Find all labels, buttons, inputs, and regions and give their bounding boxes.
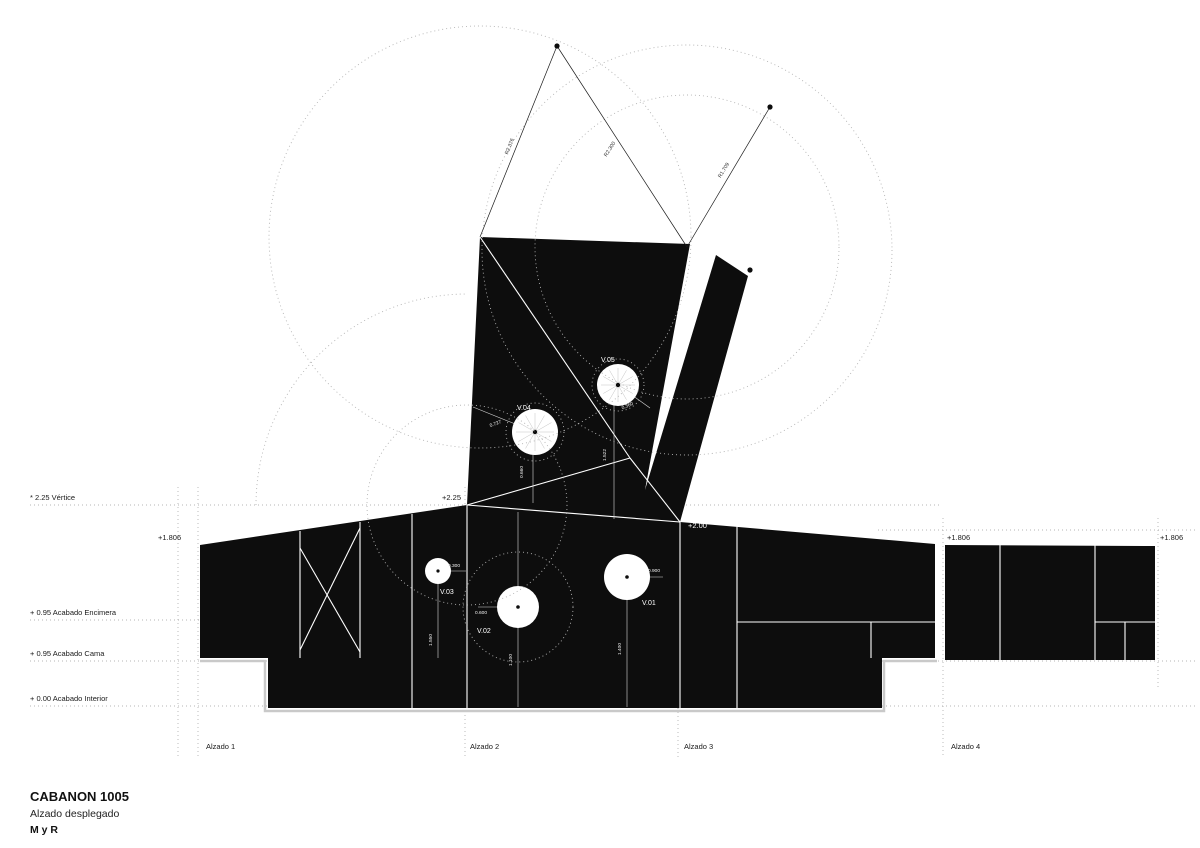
construction-arc-6 [256, 294, 467, 505]
dim-v01-height: 1.400 [617, 643, 623, 655]
level-label-1806-left: +1.806 [158, 533, 181, 542]
window-label-v05: V.05 [601, 357, 615, 364]
alzado-label-2: Alzado 2 [470, 742, 499, 751]
level-label-interior: + 0.00 Acabado Interior [30, 694, 108, 703]
window-label-v03: V.03 [440, 589, 454, 596]
radius-label-2: R2.300 [603, 141, 617, 158]
mark-apex: +2.25 [442, 493, 461, 502]
radius-dot-2 [767, 104, 772, 109]
radius-dot-1 [554, 43, 559, 48]
mark-ridge: +2.00 [688, 521, 707, 530]
window-label-v01: V.01 [642, 600, 656, 607]
radius-line-3 [687, 107, 770, 247]
author: M y R [30, 824, 58, 836]
solid-shapes [200, 237, 1155, 708]
dim-v03-diameter: 0.300 [448, 563, 460, 569]
level-label-vertice: * 2.25 Vértice [30, 493, 75, 502]
level-label-encimera: + 0.95 Acabado Encimera [30, 608, 117, 617]
alzado-label-4: Alzado 4 [951, 742, 980, 751]
radius-dot-3 [747, 267, 752, 272]
radius-lines [480, 46, 770, 247]
drawing-name: Alzado desplegado [30, 808, 119, 820]
dim-v01-diameter: 0.900 [648, 568, 660, 574]
dim-v02-height: 1.100 [508, 654, 514, 666]
project-title: CABANON 1005 [30, 789, 129, 804]
alzado-label-3: Alzado 3 [684, 742, 713, 751]
drawing-canvas: * 2.25 Vértice +1.806 +1.806 +1.806 + 0.… [0, 0, 1200, 848]
level-label-cama: + 0.95 Acabado Cama [30, 649, 105, 658]
dim-v04-b: 0.660 [519, 466, 525, 478]
radius-line-2 [557, 46, 687, 247]
dim-v05-b: 1.522 [602, 449, 608, 461]
window-label-v04: V.04 [517, 405, 531, 412]
radius-line-1 [480, 46, 557, 237]
level-label-1806-mid: +1.806 [947, 533, 970, 542]
alzado-label-1: Alzado 1 [206, 742, 235, 751]
drawing-sheet: * 2.25 Vértice +1.806 +1.806 +1.806 + 0.… [0, 0, 1200, 848]
dim-v02-diameter: 0.600 [475, 610, 487, 616]
window-label-v02: V.02 [477, 628, 491, 635]
elevation-band [200, 505, 935, 708]
title-block: CABANON 1005 Alzado desplegado M y R [30, 789, 129, 836]
dim-v03-height: 1.550 [428, 634, 434, 646]
alzado4-panel [945, 545, 1155, 660]
level-label-1806-right: +1.806 [1160, 533, 1183, 542]
